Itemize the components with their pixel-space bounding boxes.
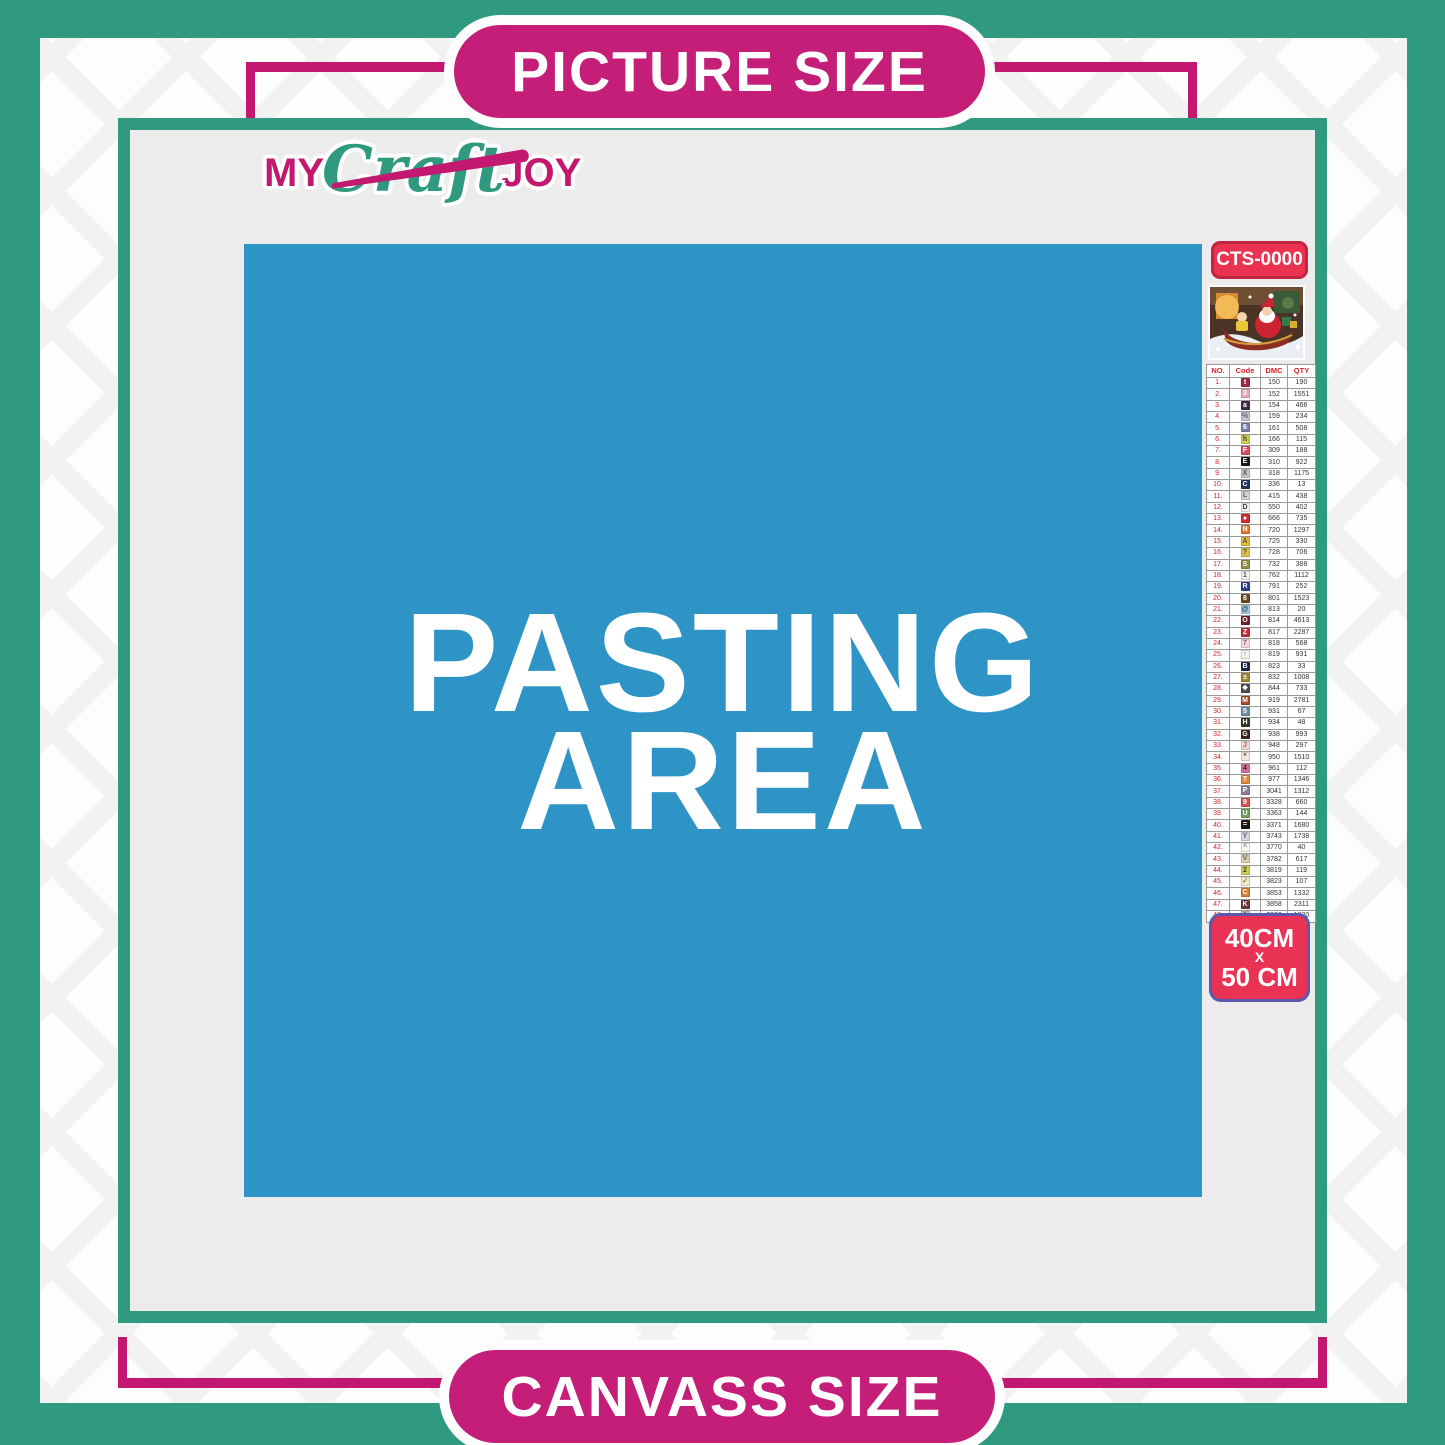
color-symbol-chip: ✓: [1241, 877, 1250, 886]
legend-table-row: 23.Z8172287: [1207, 627, 1316, 638]
legend-table-row: 15.A725330: [1207, 536, 1316, 547]
legend-table-row: 22.O8144613: [1207, 616, 1316, 627]
canvass-size-bracket-left-stub: [118, 1337, 127, 1388]
color-symbol-chip: t: [1241, 378, 1250, 387]
color-symbol-chip: Z: [1241, 628, 1250, 637]
legend-table-body: 1.t1501902.315215513.a1544664.%1592345.6…: [1207, 378, 1316, 923]
color-symbol-chip: C: [1241, 888, 1250, 897]
legend-table-row: 28.❖844733: [1207, 684, 1316, 695]
legend-table-row: 30.593167: [1207, 706, 1316, 717]
color-symbol-chip: N: [1241, 525, 1250, 534]
legend-table-row: 26.B82333: [1207, 661, 1316, 672]
legend-header-dmc: DMC: [1261, 365, 1288, 378]
legend-table-row: 35.4961112: [1207, 763, 1316, 774]
color-symbol-chip: ↑: [1241, 650, 1250, 659]
color-symbol-chip: ±: [1241, 673, 1250, 682]
legend-table-row: 32.G938993: [1207, 729, 1316, 740]
dimension-width-label: 40CM: [1225, 925, 1294, 951]
legend-table-row: 38.93328660: [1207, 797, 1316, 808]
legend-table-row: 45.✓3823107: [1207, 877, 1316, 888]
color-symbol-chip: ❖: [1241, 684, 1250, 693]
canvass-size-bracket-right-stub: [1318, 1337, 1327, 1388]
color-symbol-chip: B: [1241, 662, 1250, 671]
legend-table-row: 27.±8321008: [1207, 672, 1316, 683]
color-symbol-chip: 5: [1241, 707, 1250, 716]
legend-table-row: 33.J948297: [1207, 741, 1316, 752]
legend-table-row: 36.T9771346: [1207, 775, 1316, 786]
color-symbol-chip: Y: [1241, 832, 1250, 841]
color-symbol-chip: P: [1241, 786, 1250, 795]
legend-table-row: 39.U3363144: [1207, 809, 1316, 820]
brand-logo: MY Craft JOY: [264, 138, 581, 196]
legend-table-row: 29.M9192781: [1207, 695, 1316, 706]
legend-table-row: 1.t150190: [1207, 378, 1316, 389]
legend-table-row: 16.?728706: [1207, 548, 1316, 559]
color-symbol-chip: E: [1241, 457, 1250, 466]
color-symbol-chip: L: [1241, 491, 1250, 500]
color-symbol-chip: T: [1241, 775, 1250, 784]
legend-table-row: 17.S732388: [1207, 559, 1316, 570]
color-symbol-chip: ●: [1241, 514, 1250, 523]
color-symbol-chip: 9: [1241, 798, 1250, 807]
legend-table-row: 20.88011523: [1207, 593, 1316, 604]
legend-header-qty: QTY: [1288, 365, 1316, 378]
legend-table-row: 31.H93448: [1207, 718, 1316, 729]
legend-table-row: 4.%159234: [1207, 412, 1316, 423]
legend-table-row: 6.h166115: [1207, 434, 1316, 445]
dimension-height-label: 50 CM: [1221, 964, 1298, 990]
color-symbol-chip: M: [1241, 696, 1250, 705]
legend-table-row: 42.^377040: [1207, 843, 1316, 854]
pasting-area-label-line2: AREA: [517, 721, 929, 839]
color-symbol-chip: 6: [1241, 423, 1250, 432]
legend-table-row: 3.a154466: [1207, 400, 1316, 411]
color-legend-table: NO.CodeDMCQTY 1.t1501902.315215513.a1544…: [1206, 364, 1316, 923]
legend-table-row: 14.N7201297: [1207, 525, 1316, 536]
legend-header-no: NO.: [1207, 365, 1230, 378]
legend-table-row: 43.V3782617: [1207, 854, 1316, 865]
legend-table-row: 47.K38582311: [1207, 899, 1316, 910]
color-symbol-chip: H: [1241, 718, 1250, 727]
color-symbol-chip: ?: [1241, 548, 1250, 557]
color-symbol-chip: F: [1241, 446, 1250, 455]
color-symbol-chip: 1: [1241, 571, 1250, 580]
pasting-area: PASTING AREA: [244, 244, 1202, 1197]
legend-table-row: 18.17621112: [1207, 570, 1316, 581]
legend-table-row: 13.●666735: [1207, 514, 1316, 525]
legend-header-code: Code: [1230, 365, 1261, 378]
legend-table-row: 40.=33711680: [1207, 820, 1316, 831]
color-symbol-chip: 8: [1241, 594, 1250, 603]
color-symbol-chip: O: [1241, 616, 1250, 625]
legend-table-row: 7.F309188: [1207, 446, 1316, 457]
color-symbol-chip: ^: [1241, 843, 1250, 852]
legend-table-row: 9.X3181175: [1207, 468, 1316, 479]
legend-table-row: 24.7818568: [1207, 638, 1316, 649]
legend-table-row: 44.23819119: [1207, 865, 1316, 876]
color-symbol-chip: S: [1241, 560, 1250, 569]
canvass-size-label: CANVASS SIZE: [449, 1350, 995, 1443]
legend-table-row: 34.*9501510: [1207, 752, 1316, 763]
canvas-dimensions-badge: 40CM X 50 CM: [1209, 913, 1310, 1002]
legend-table-row: 8.E310922: [1207, 457, 1316, 468]
color-symbol-chip: J: [1241, 741, 1250, 750]
picture-size-label: PICTURE SIZE: [454, 25, 985, 118]
color-symbol-chip: a: [1241, 401, 1250, 410]
color-symbol-chip: @: [1241, 605, 1250, 614]
color-symbol-chip: D: [1241, 503, 1250, 512]
christmas-santa-sleigh-artwork-thumbnail: [1210, 287, 1303, 358]
legend-table-row: 41.Y37431738: [1207, 831, 1316, 842]
color-symbol-chip: 7: [1241, 639, 1250, 648]
legend-table-row: 21.@81320: [1207, 604, 1316, 615]
design-code-badge: CTS-0000: [1211, 241, 1308, 279]
legend-table-row: 46.C38531332: [1207, 888, 1316, 899]
legend-table-row: 10.C33613: [1207, 480, 1316, 491]
legend-table-header-row: NO.CodeDMCQTY: [1207, 365, 1316, 378]
legend-table-row: 12.D550402: [1207, 502, 1316, 513]
color-symbol-chip: C: [1241, 480, 1250, 489]
poster-canvas: MY Craft JOY PASTING AREA PICTURE SIZE C…: [0, 0, 1445, 1445]
legend-table-row: 37.P30411312: [1207, 786, 1316, 797]
color-symbol-chip: A: [1241, 537, 1250, 546]
legend-table-row: 25.↑819931: [1207, 650, 1316, 661]
color-symbol-chip: 3: [1241, 389, 1250, 398]
color-symbol-chip: U: [1241, 809, 1250, 818]
legend-table-row: 5.6161508: [1207, 423, 1316, 434]
color-symbol-chip: G: [1241, 730, 1250, 739]
legend-table-row: 19.R791252: [1207, 582, 1316, 593]
color-symbol-chip: V: [1241, 854, 1250, 863]
color-symbol-chip: 2: [1241, 866, 1250, 875]
legend-table-row: 11.L415438: [1207, 491, 1316, 502]
color-symbol-chip: h: [1241, 435, 1250, 444]
color-symbol-chip: *: [1241, 752, 1250, 761]
color-symbol-chip: K: [1241, 900, 1250, 909]
legend-table-row: 2.31521551: [1207, 389, 1316, 400]
color-symbol-chip: =: [1241, 820, 1250, 829]
color-symbol-chip: R: [1241, 582, 1250, 591]
color-symbol-chip: %: [1241, 412, 1250, 421]
color-symbol-chip: X: [1241, 469, 1250, 478]
color-symbol-chip: 4: [1241, 764, 1250, 773]
logo-text-my: MY: [264, 151, 324, 196]
